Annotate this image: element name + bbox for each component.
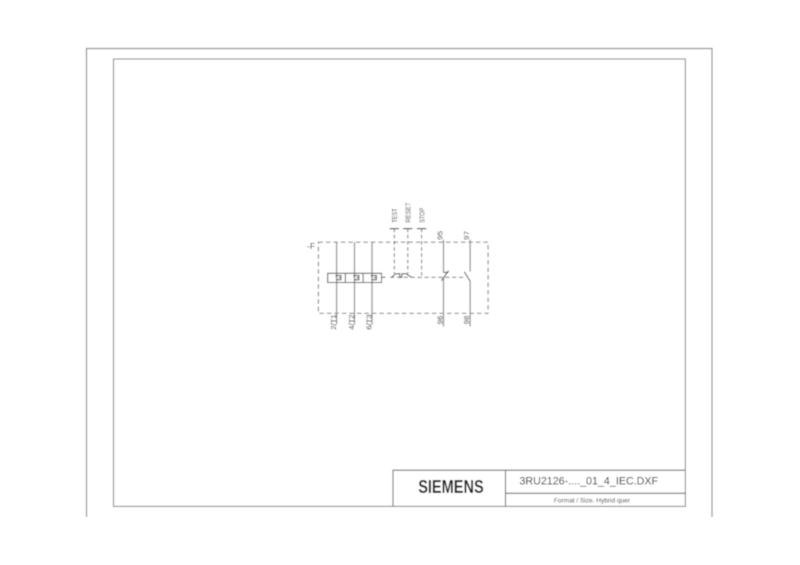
svg-text:3RU2126-...._01_4_IEC.DXF: 3RU2126-...._01_4_IEC.DXF xyxy=(519,475,658,487)
svg-text:96: 96 xyxy=(436,316,445,325)
svg-text:RESET: RESET xyxy=(404,202,413,223)
svg-text:97: 97 xyxy=(462,231,471,240)
svg-text:2/T1: 2/T1 xyxy=(329,314,338,329)
svg-text:95: 95 xyxy=(436,231,445,240)
svg-text:STOP: STOP xyxy=(417,208,426,223)
svg-text:TEST: TEST xyxy=(390,208,399,223)
svg-text:SIEMENS: SIEMENS xyxy=(418,477,484,497)
svg-text:4/T2: 4/T2 xyxy=(347,314,356,329)
svg-text:6/T3: 6/T3 xyxy=(364,314,373,329)
svg-text:-F: -F xyxy=(307,241,315,251)
svg-text:Format / Size. Hybrid quer: Format / Size. Hybrid quer xyxy=(554,498,631,505)
svg-text:98: 98 xyxy=(462,316,471,325)
